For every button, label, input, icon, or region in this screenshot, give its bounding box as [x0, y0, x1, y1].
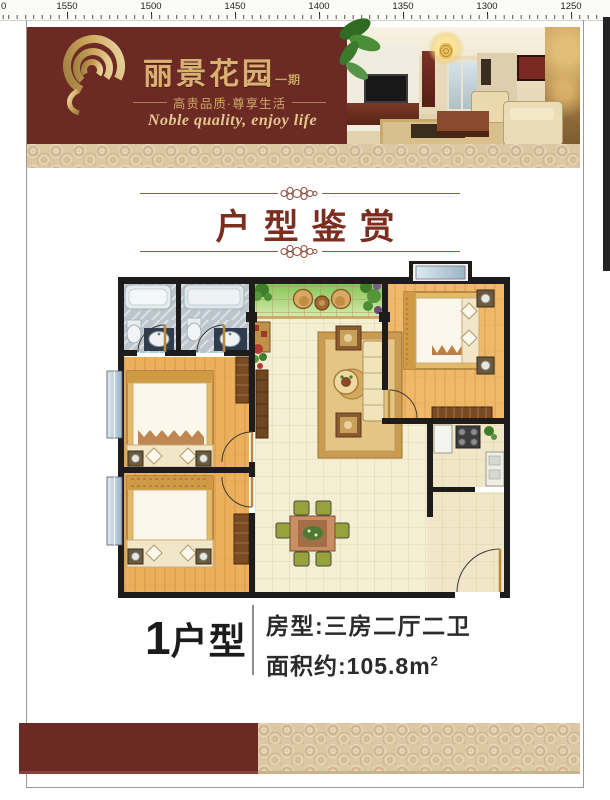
ruler-label: 1400 — [308, 1, 329, 12]
footer-maroon-bar[interactable] — [19, 723, 258, 774]
photo-sofa — [503, 101, 563, 144]
page-edge-right — [583, 20, 584, 788]
ruler-edge-label: 0 — [1, 1, 6, 12]
unit-number-word: 户型 — [171, 621, 247, 662]
ruler-label: 1300 — [476, 1, 497, 12]
ruler-label: 1550 — [56, 1, 77, 12]
ruler-label: 1500 — [140, 1, 161, 12]
footer-pattern-bar[interactable] — [258, 723, 580, 774]
ruler-label: 1250 — [560, 1, 581, 12]
plant-leaves-icon — [339, 13, 389, 89]
ruler-label: 1350 — [392, 1, 413, 12]
horizontal-ruler[interactable]: 0 1550150014501400135013001250 — [0, 0, 610, 21]
header-brand-block[interactable]: 丽景花园一期 高贵品质·尊享生活 Noble quality, enjoy li… — [27, 27, 347, 144]
ornament-rule-bottom — [140, 243, 460, 259]
photo-chandelier — [427, 31, 465, 65]
tagline-cn-text: 高贵品质·尊享生活 — [173, 93, 286, 112]
unit-spec[interactable]: 房型:三房二厅二卫 面积约:105.8m2 — [266, 607, 471, 681]
brand-phase: 一期 — [275, 73, 301, 87]
brand-tagline-cn: 高贵品质·尊享生活 — [127, 93, 332, 112]
brand-name-text: 丽景花园 — [143, 58, 275, 91]
brand-tagline-en: Noble quality, enjoy life — [115, 112, 350, 130]
design-canvas: 0 1550150014501400135013001250 丽景花园一期 高贵… — [0, 0, 610, 800]
ruler-label: 1450 — [224, 1, 245, 12]
ornament-knot-icon — [278, 244, 322, 259]
unit-info-divider — [252, 605, 254, 675]
unit-number-digit: 1 — [145, 612, 171, 664]
unit-area-exponent: 2 — [431, 653, 439, 668]
phoenix-logo-icon — [53, 33, 131, 119]
brand-name: 丽景花园一期 — [143, 49, 301, 93]
photo-coffee-table — [437, 111, 489, 137]
unit-area-label: 面积约:105.8m2 — [266, 647, 471, 681]
unit-area-text: 面积约:105.8m — [266, 653, 431, 679]
floor-plan[interactable] — [106, 258, 512, 602]
unit-number[interactable]: 1户型 — [145, 611, 247, 665]
unit-rooms-label: 房型:三房二厅二卫 — [266, 607, 471, 641]
photo-wall-art — [517, 55, 547, 81]
ruler-minor-ticks — [0, 15, 602, 19]
pattern-strip-top[interactable] — [27, 144, 580, 168]
photo-shelf — [481, 59, 491, 85]
page-edge-bottom — [26, 787, 584, 788]
